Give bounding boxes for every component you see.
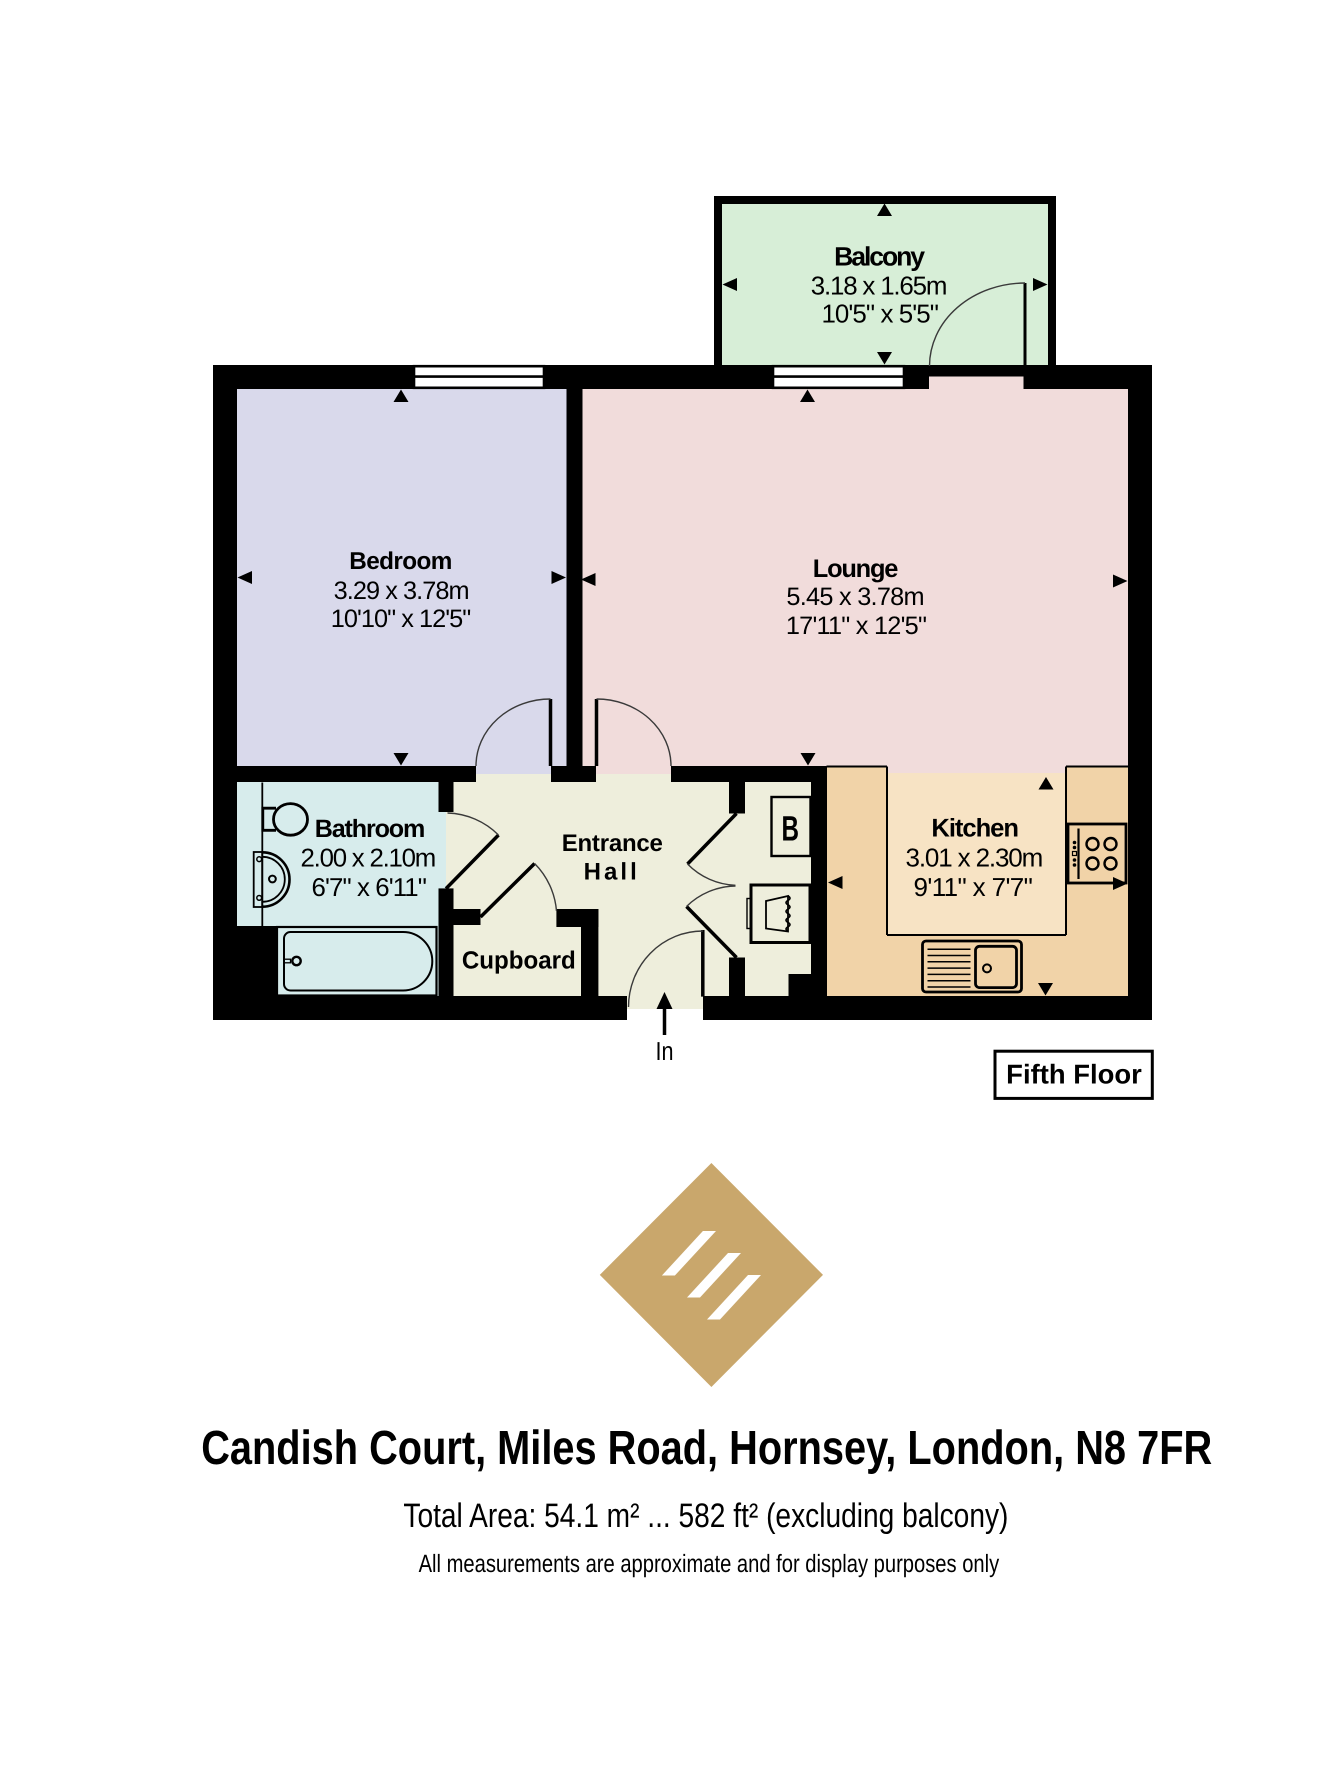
svg-text:All measurements are approxima: All measurements are approximate and for… xyxy=(419,1550,1000,1578)
svg-text:3.18 x 1.65m: 3.18 x 1.65m xyxy=(811,273,948,301)
svg-text:3.01 x 2.30m: 3.01 x 2.30m xyxy=(906,843,1044,873)
svg-text:17'11" x 12'5": 17'11" x 12'5" xyxy=(786,612,927,640)
svg-text:Cupboard: Cupboard xyxy=(462,946,576,974)
svg-text:10'5" x 5'5": 10'5" x 5'5" xyxy=(821,300,939,328)
svg-text:Candish Court, Miles Road, Hor: Candish Court, Miles Road, Hornsey, Lond… xyxy=(201,1422,1212,1475)
svg-text:10'10" x 12'5": 10'10" x 12'5" xyxy=(331,605,472,633)
svg-text:Total Area: 54.1 m² ... 582 ft: Total Area: 54.1 m² ... 582 ft² (excludi… xyxy=(403,1497,1008,1535)
svg-text:Entrance: Entrance xyxy=(562,830,663,857)
svg-text:5.45 x 3.78m: 5.45 x 3.78m xyxy=(786,583,924,611)
svg-text:9'11" x 7'7": 9'11" x 7'7" xyxy=(914,872,1033,902)
svg-text:Bathroom: Bathroom xyxy=(315,815,426,843)
svg-text:Balcony: Balcony xyxy=(834,242,925,272)
svg-text:3.29 x 3.78m: 3.29 x 3.78m xyxy=(334,577,470,605)
svg-text:Lounge: Lounge xyxy=(813,555,899,583)
svg-text:6'7" x 6'11": 6'7" x 6'11" xyxy=(312,874,427,902)
svg-text:B: B xyxy=(781,810,799,849)
svg-text:In: In xyxy=(656,1036,674,1066)
svg-text:Fifth Floor: Fifth Floor xyxy=(1006,1059,1142,1090)
svg-text:Kitchen: Kitchen xyxy=(931,815,1019,843)
svg-text:Bedroom: Bedroom xyxy=(349,548,452,575)
svg-text:2.00 x 2.10m: 2.00 x 2.10m xyxy=(301,845,437,873)
